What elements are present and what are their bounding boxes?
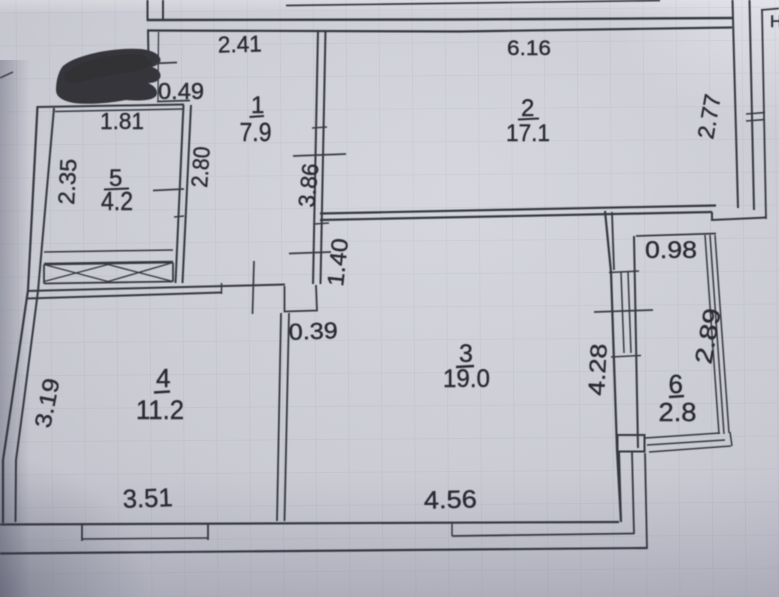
svg-text:7.9: 7.9 bbox=[240, 117, 272, 147]
svg-text:2.35: 2.35 bbox=[53, 158, 81, 205]
svg-text:19.0: 19.0 bbox=[443, 365, 490, 393]
svg-text:1.40: 1.40 bbox=[322, 237, 353, 287]
svg-text:4.28: 4.28 bbox=[583, 343, 612, 396]
svg-text:11.2: 11.2 bbox=[136, 395, 184, 425]
svg-text:0.39: 0.39 bbox=[288, 317, 338, 345]
svg-text:3: 3 bbox=[459, 340, 473, 368]
svg-text:6: 6 bbox=[669, 369, 683, 399]
svg-text:3.51: 3.51 bbox=[122, 482, 173, 514]
svg-text:4.2: 4.2 bbox=[101, 186, 133, 216]
svg-text:2.8: 2.8 bbox=[659, 397, 697, 427]
svg-text:0.98: 0.98 bbox=[645, 237, 697, 264]
svg-text:1.81: 1.81 bbox=[100, 108, 144, 134]
svg-text:0.49: 0.49 bbox=[158, 78, 204, 104]
svg-text:2.41: 2.41 bbox=[217, 30, 262, 57]
svg-text:4.56: 4.56 bbox=[423, 485, 477, 514]
svg-text:17.1: 17.1 bbox=[506, 120, 550, 147]
svg-text:Н: Н bbox=[770, 12, 779, 31]
svg-text:6.16: 6.16 bbox=[507, 37, 551, 60]
svg-text:4: 4 bbox=[156, 363, 170, 393]
svg-text:3.86: 3.86 bbox=[293, 162, 323, 208]
svg-text:2.80: 2.80 bbox=[186, 146, 215, 189]
svg-text:1: 1 bbox=[251, 92, 264, 119]
